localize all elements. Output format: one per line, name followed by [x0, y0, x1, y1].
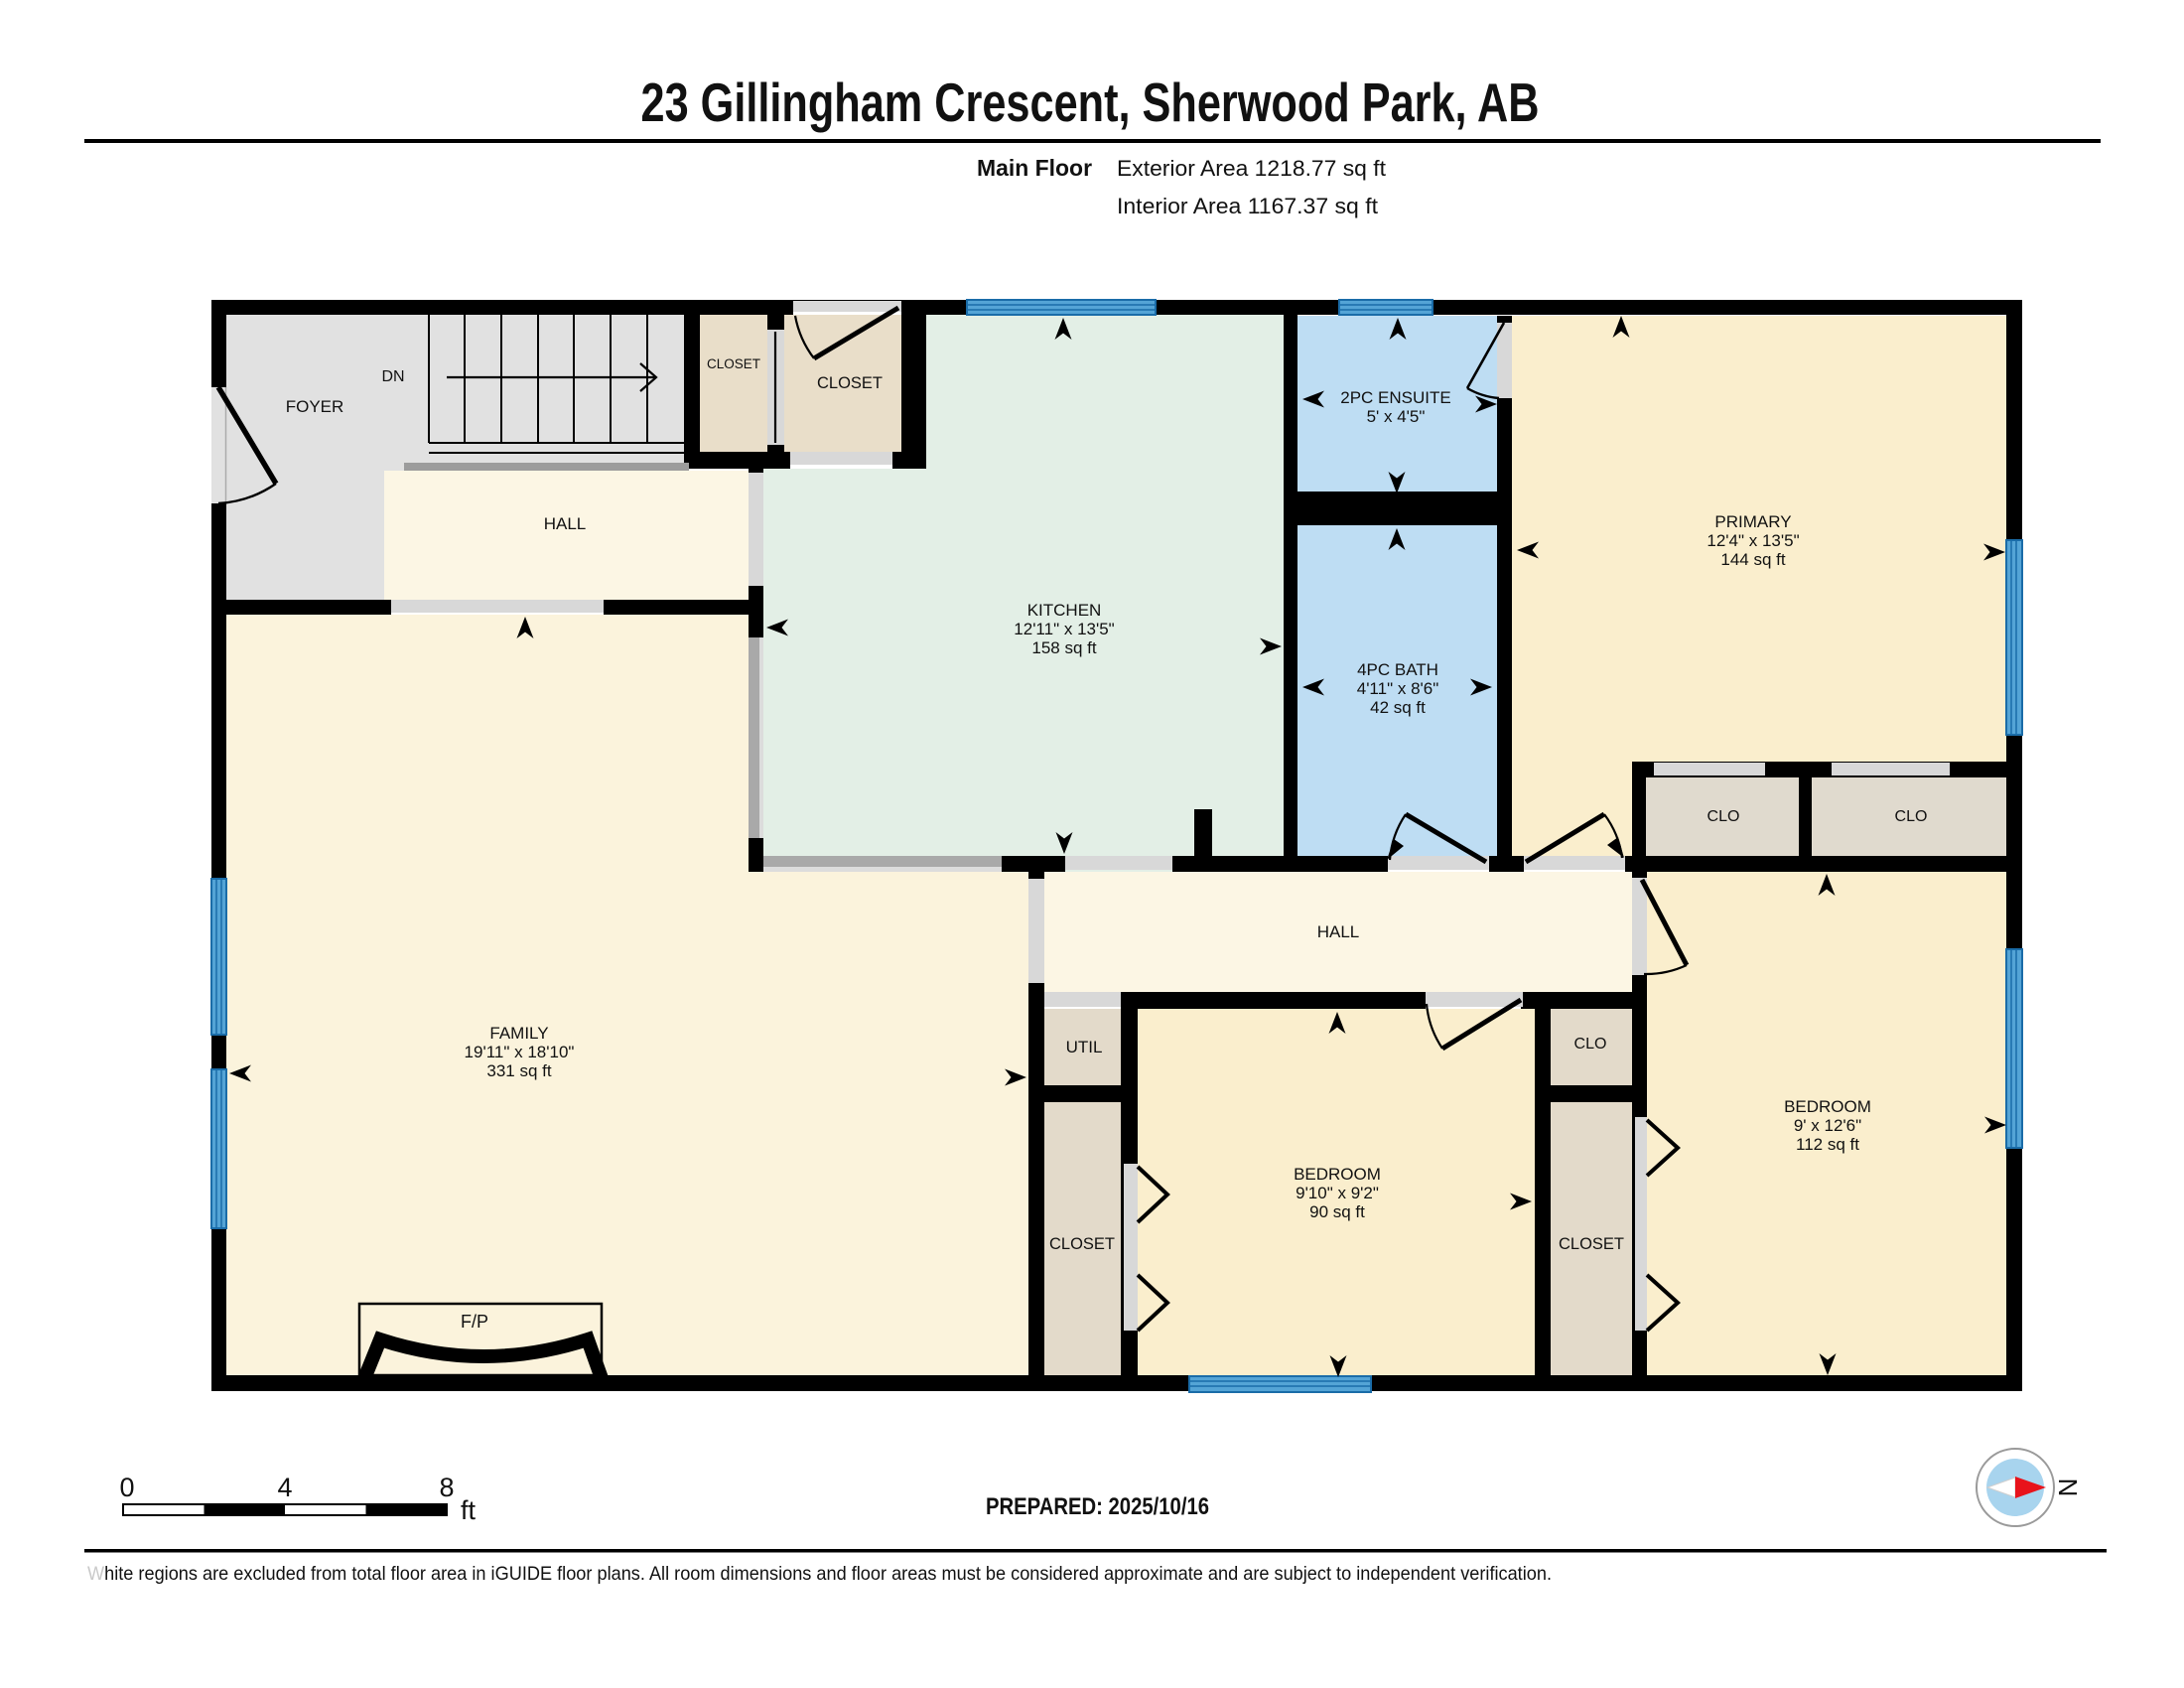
- svg-text:UTIL: UTIL: [1066, 1038, 1103, 1056]
- svg-text:N: N: [2053, 1478, 2083, 1497]
- svg-text:KITCHEN: KITCHEN: [1027, 601, 1102, 620]
- svg-text:158 sq ft: 158 sq ft: [1031, 638, 1096, 657]
- svg-text:PRIMARY: PRIMARY: [1714, 512, 1791, 531]
- svg-text:Main Floor: Main Floor: [977, 155, 1092, 181]
- svg-text:BEDROOM: BEDROOM: [1784, 1097, 1871, 1116]
- svg-text:4PC BATH: 4PC BATH: [1357, 660, 1438, 679]
- svg-text:8: 8: [439, 1473, 454, 1502]
- svg-text:CLOSET: CLOSET: [1559, 1235, 1624, 1253]
- svg-text:DN: DN: [381, 368, 404, 385]
- svg-text:9' x 12'6": 9' x 12'6": [1794, 1116, 1861, 1135]
- svg-text:0: 0: [119, 1473, 134, 1502]
- svg-text:23 Gillingham Crescent, Sherwo: 23 Gillingham Crescent, Sherwood Park, A…: [641, 71, 1540, 133]
- svg-text:19'11" x 18'10": 19'11" x 18'10": [465, 1043, 575, 1061]
- svg-text:CLOSET: CLOSET: [817, 374, 883, 392]
- svg-text:CLO: CLO: [1574, 1036, 1607, 1053]
- svg-text:White regions are excluded fro: White regions are excluded from total fl…: [87, 1563, 1552, 1585]
- svg-text:ft: ft: [461, 1495, 477, 1525]
- svg-text:2PC ENSUITE: 2PC ENSUITE: [1340, 388, 1450, 407]
- svg-text:F/P: F/P: [461, 1312, 488, 1332]
- svg-text:CLO: CLO: [1895, 808, 1928, 825]
- svg-text:CLOSET: CLOSET: [1049, 1235, 1115, 1253]
- svg-text:144 sq ft: 144 sq ft: [1720, 550, 1785, 569]
- svg-text:HALL: HALL: [544, 514, 587, 533]
- svg-text:331 sq ft: 331 sq ft: [486, 1061, 551, 1080]
- svg-text:CLO: CLO: [1707, 808, 1740, 825]
- svg-text:PREPARED: 2025/10/16: PREPARED: 2025/10/16: [986, 1493, 1209, 1520]
- svg-text:CLOSET: CLOSET: [707, 356, 760, 371]
- svg-text:5' x 4'5": 5' x 4'5": [1367, 407, 1426, 426]
- svg-text:90 sq ft: 90 sq ft: [1309, 1202, 1365, 1221]
- svg-text:12'4" x 13'5": 12'4" x 13'5": [1706, 531, 1799, 550]
- svg-text:12'11" x 13'5": 12'11" x 13'5": [1014, 620, 1114, 638]
- svg-text:HALL: HALL: [1317, 922, 1360, 941]
- svg-text:4: 4: [277, 1473, 292, 1502]
- svg-text:BEDROOM: BEDROOM: [1294, 1165, 1381, 1184]
- svg-text:9'10" x 9'2": 9'10" x 9'2": [1296, 1184, 1379, 1202]
- svg-text:Exterior Area 1218.77 sq ft: Exterior Area 1218.77 sq ft: [1117, 156, 1387, 181]
- svg-text:42 sq ft: 42 sq ft: [1370, 698, 1426, 717]
- svg-text:4'11" x 8'6": 4'11" x 8'6": [1357, 679, 1439, 698]
- svg-text:112 sq ft: 112 sq ft: [1796, 1135, 1859, 1154]
- svg-text:FAMILY: FAMILY: [489, 1024, 548, 1043]
- svg-text:Interior Area 1167.37 sq ft: Interior Area 1167.37 sq ft: [1117, 194, 1379, 218]
- svg-text:FOYER: FOYER: [286, 397, 344, 416]
